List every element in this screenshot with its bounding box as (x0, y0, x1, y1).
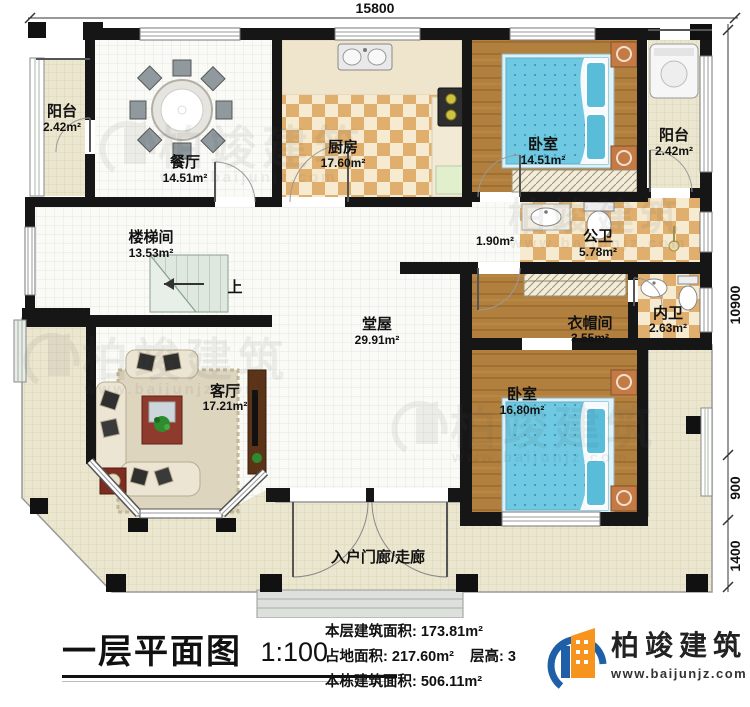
svg-text:17.21m²: 17.21m² (203, 399, 248, 413)
svg-text:www.baijunjz.com: www.baijunjz.com (451, 449, 629, 466)
total-area-line: 本栋建筑面积: 506.11m² (325, 670, 560, 695)
floor-area-label: 本层建筑面积: (325, 624, 417, 640)
corridor-label: 1.90m² (476, 234, 514, 248)
balcony-left-label: 阳台 (47, 102, 77, 120)
floor-area-line: 本层建筑面积: 173.81m² (325, 620, 560, 645)
svg-text:17.60m²: 17.60m² (321, 156, 366, 170)
land-area-line: 占地面积: 217.60m² 层高: 3 (325, 645, 560, 670)
living-label: 客厅 (209, 382, 240, 400)
svg-text:2.42m²: 2.42m² (43, 120, 81, 134)
height-label: 层高: (470, 649, 504, 665)
land-area-label: 占地面积: (325, 649, 388, 665)
bedroom-bottom-label: 卧室 (507, 385, 537, 403)
balcony-left-railing (30, 58, 44, 196)
svg-text:2.63m²: 2.63m² (649, 321, 687, 335)
wardrobe (512, 170, 637, 192)
kitchen-label: 厨房 (328, 138, 358, 156)
brand-website: www.baijunjz.com (611, 666, 747, 681)
porch-label: 入户门廊/走廊 (331, 548, 425, 566)
kitchen-mat (436, 166, 464, 194)
bedroom-top-label: 卧室 (528, 135, 558, 153)
dimension-right-lower: 1400 (727, 540, 743, 571)
staircase (150, 255, 228, 312)
total-area-value: 506.11m² (421, 674, 482, 690)
svg-text:柏竣建筑: 柏竣建筑 (82, 334, 290, 386)
nightstand (611, 370, 637, 395)
svg-text:13.53m²: 13.53m² (129, 246, 174, 260)
floor-plan-page: { "plan": { "dimensions": { "top": "1580… (0, 0, 750, 707)
dimension-right-upper: 10900 (727, 285, 743, 324)
porch-right-window (701, 408, 712, 496)
svg-text:2.42m²: 2.42m² (655, 144, 693, 158)
dimension-right-middle: 900 (727, 476, 743, 500)
stove (438, 88, 464, 126)
floor-area-value: 173.81m² (421, 624, 483, 640)
washing-machine (650, 44, 698, 98)
nightstand (611, 42, 637, 67)
floor-plan-canvas: 柏竣建筑 www.baijunjz.com 柏竣建筑 www.baijunjz.… (0, 0, 750, 620)
hall-label: 堂屋 (362, 315, 392, 333)
brand-text: 柏竣建筑 www.baijunjz.com (611, 624, 747, 681)
title-block: 一层平面图 1:100 本层建筑面积: 173.81m² 占地面积: 217.6… (0, 618, 750, 707)
drawing-scale: 1:100 (260, 637, 328, 668)
porch-left-window (14, 320, 26, 382)
area-stats: 本层建筑面积: 173.81m² 占地面积: 217.60m² 层高: 3 本栋… (325, 620, 560, 695)
nightstand (611, 486, 637, 511)
land-area-value: 217.60m² (392, 649, 454, 665)
public-bath-label: 公卫 (583, 228, 613, 245)
brand-logo-icon (545, 624, 609, 698)
private-bath-label: 内卫 (653, 304, 683, 322)
svg-text:16.80m²: 16.80m² (500, 403, 545, 417)
total-area-label: 本栋建筑面积: (325, 674, 417, 690)
drawing-title: 一层平面图 (62, 624, 242, 673)
stairwell-label: 楼梯间 (128, 228, 173, 246)
kitchen-sink (338, 44, 392, 70)
svg-text:3.55m²: 3.55m² (571, 331, 609, 345)
stair-up-label: 上 (227, 279, 242, 296)
balcony-right-label: 阳台 (659, 126, 689, 144)
coffee-table (142, 396, 182, 444)
svg-text:29.91m²: 29.91m² (355, 333, 400, 347)
svg-text:5.78m²: 5.78m² (579, 245, 617, 259)
height-value: 3 (508, 649, 516, 665)
cloakroom-label: 衣帽间 (567, 314, 612, 332)
svg-text:14.51m²: 14.51m² (521, 153, 566, 167)
entrance-steps (257, 590, 463, 618)
brand-name: 柏竣建筑 (611, 624, 747, 664)
dining-label: 餐厅 (170, 153, 200, 171)
svg-text:14.51m²: 14.51m² (163, 171, 208, 185)
dimension-top: 15800 (356, 0, 395, 16)
nightstand (611, 146, 637, 171)
svg-text:柏竣建筑: 柏竣建筑 (450, 402, 658, 454)
